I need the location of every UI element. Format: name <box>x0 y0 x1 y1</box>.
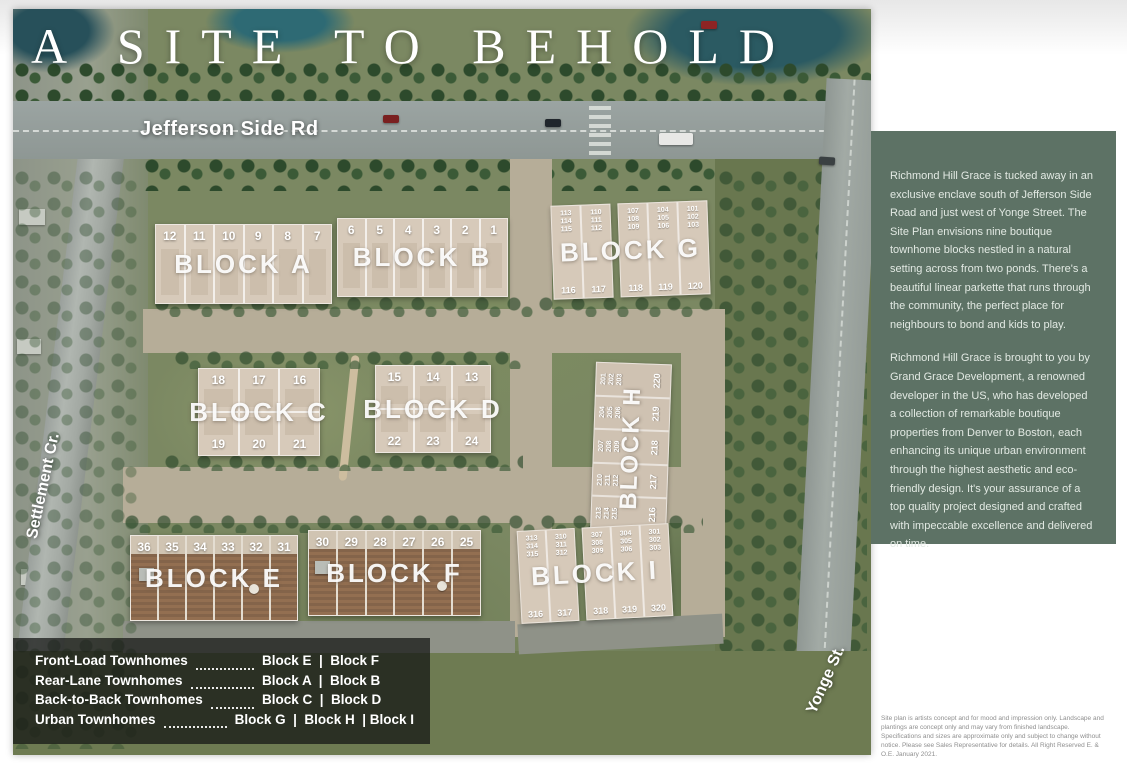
unit-cell: 301 302 303320 <box>641 524 673 616</box>
crosswalk <box>589 105 611 155</box>
block-h: 201 202 203220 204 205 206219 207 208 20… <box>590 362 672 535</box>
block-e-units: 36 35 34 33 32 31 <box>131 536 297 620</box>
unit-number: 36 <box>131 540 157 554</box>
unit-cell: 31 <box>271 536 297 620</box>
unit-number: 317 <box>551 607 579 618</box>
legend-type: Rear-Lane Townhomes <box>35 673 183 688</box>
unit-number: 116 <box>554 285 583 296</box>
unit-numbers: 310 311 312 <box>547 533 575 558</box>
legend-row: Rear-Lane Townhomes Block A | Block B <box>35 673 414 693</box>
unit-cell: 310 311 312317 <box>547 529 579 621</box>
unit-numbers: 101 102 103 <box>679 205 708 230</box>
deck <box>271 554 297 620</box>
unit-cell: 110 111 112117 <box>582 205 613 298</box>
block-i-east-building: 307 308 309318 304 305 306319 301 302 30… <box>582 523 673 620</box>
unit-cell: 113 114 115116 <box>551 206 584 299</box>
unit-cell: 17 <box>240 369 281 411</box>
legend-row: Front-Load Townhomes Block E | Block F <box>35 653 414 673</box>
unit-number: 118 <box>622 282 650 293</box>
unit-cell: 15 <box>376 366 415 408</box>
panel-paragraph-2: Richmond Hill Grace is brought to you by… <box>890 349 1094 554</box>
unit-number: 219 <box>650 407 661 422</box>
block-d-row-top: 15 14 13 <box>376 366 490 410</box>
unit-cell: 21 <box>280 413 319 455</box>
road-lane-line <box>13 130 845 132</box>
unit-number: 3 <box>424 223 451 237</box>
block-i: 313 314 315316 310 311 312317 307 308 30… <box>517 523 674 624</box>
unit-number: 218 <box>649 440 660 455</box>
deck <box>367 549 394 615</box>
block-h-label: BLOCK H <box>615 386 647 510</box>
disclaimer-text: Site plan is artists concept and for moo… <box>881 714 1109 759</box>
unit-number: 17 <box>240 373 279 387</box>
block-d-row-bottom: 22 23 24 <box>376 410 490 452</box>
block-b: 6 5 4 3 2 1 BLOCK B <box>337 218 508 297</box>
unit-cell: 9 <box>245 225 275 303</box>
unit-number: 24 <box>453 434 490 448</box>
block-g: 113 114 115116 110 111 112117 107 108 10… <box>550 200 710 299</box>
unit-cell: 11 <box>186 225 216 303</box>
deck <box>395 549 422 615</box>
dot-leader <box>164 726 227 728</box>
unit-cell: 104 105 106119 <box>649 202 682 295</box>
unit-cell: 313 314 315316 <box>518 530 552 622</box>
unit-number: 23 <box>415 434 452 448</box>
unit-cell: 20 <box>240 413 281 455</box>
unit-cell: 22 <box>376 410 415 452</box>
unit-cell: 3 <box>424 219 453 296</box>
block-e: 36 35 34 33 32 31 BLOCK E <box>130 535 298 621</box>
block-b-units: 6 5 4 3 2 1 <box>338 219 507 296</box>
unit-number: 14 <box>415 370 452 384</box>
shed <box>315 561 330 574</box>
unit-cell: 12 <box>156 225 186 303</box>
unit-cell: 26 <box>424 531 453 615</box>
legend-type: Urban Townhomes <box>35 712 156 727</box>
tree-row <box>143 157 723 191</box>
unit-cell: 32 <box>243 536 271 620</box>
unit-number: 117 <box>584 284 613 295</box>
unit-cell: 4 <box>395 219 424 296</box>
unit-cell: 25 <box>453 531 480 615</box>
unit-numbers: 307 308 309 <box>583 531 611 556</box>
legend-row: Back-to-Back Townhomes Block C | Block D <box>35 692 414 712</box>
unit-number: 319 <box>616 604 643 615</box>
block-g-east-building: 107 108 109118 104 105 106119 101 102 10… <box>618 200 711 297</box>
unit-number: 11 <box>186 229 214 243</box>
brochure-page: A SITE TO BEHOLD Jefferson Side Rd Settl… <box>0 0 1127 763</box>
unit-cell: 6 <box>338 219 367 296</box>
car <box>819 156 836 165</box>
unit-number: 34 <box>187 540 213 554</box>
unit-number: 12 <box>156 229 184 243</box>
dot-leader <box>196 668 254 670</box>
unit-number: 316 <box>522 608 550 619</box>
unit-number: 2 <box>452 223 479 237</box>
block-d: 15 14 13 22 23 24 BLOCK D <box>375 365 491 453</box>
car <box>545 119 561 127</box>
block-i-units: 313 314 315316 310 311 312317 307 308 30… <box>517 523 674 624</box>
deck <box>338 549 365 615</box>
unit-number: 16 <box>280 373 319 387</box>
unit-number: 15 <box>376 370 413 384</box>
legend-type: Front-Load Townhomes <box>35 653 188 668</box>
block-c-row-bottom: 19 20 21 <box>199 413 319 455</box>
unit-cell: 18 <box>199 369 240 411</box>
unit-cell: 24 <box>453 410 490 452</box>
unit-number: 119 <box>651 281 679 292</box>
unit-number: 7 <box>304 229 332 243</box>
unit-number: 217 <box>648 474 659 489</box>
unit-number: 33 <box>215 540 241 554</box>
unit-number: 8 <box>274 229 302 243</box>
unit-number: 5 <box>367 223 394 237</box>
block-i-west-building: 313 314 315316 310 311 312317 <box>517 528 580 624</box>
legend-row: Urban Townhomes Block G | Block H | Bloc… <box>35 712 414 732</box>
dot-leader <box>211 707 254 709</box>
unit-numbers: 313 314 315 <box>518 535 546 560</box>
unit-number: 32 <box>243 540 269 554</box>
unit-cell: 27 <box>395 531 424 615</box>
unit-cell: 10 <box>215 225 245 303</box>
unit-number: 318 <box>587 605 614 616</box>
legend: Front-Load Townhomes Block E | Block F R… <box>13 638 430 744</box>
unit-number: 30 <box>309 535 336 549</box>
legend-blocks: Block A | Block B <box>262 673 414 688</box>
description-panel: Richmond Hill Grace is tucked away in an… <box>870 131 1116 544</box>
block-c-units: 18 17 16 19 20 21 <box>199 369 319 455</box>
unit-cell: 14 <box>415 366 454 408</box>
unit-numbers: 304 305 306 <box>612 530 640 555</box>
unit-cell: 13 <box>453 366 490 408</box>
unit-number: 13 <box>453 370 490 384</box>
unit-cell: 23 <box>415 410 454 452</box>
block-c-row-top: 18 17 16 <box>199 369 319 413</box>
deck <box>187 554 213 620</box>
unit-number: 6 <box>338 223 365 237</box>
unit-number: 35 <box>159 540 185 554</box>
unit-cell: 2 <box>452 219 481 296</box>
unit-number: 10 <box>215 229 243 243</box>
unit-number: 21 <box>280 437 319 451</box>
unit-cell: 304 305 306319 <box>612 526 646 618</box>
deck <box>131 554 157 620</box>
unit-number: 31 <box>271 540 297 554</box>
page-title: A SITE TO BEHOLD <box>31 17 795 75</box>
unit-cell: 1 <box>481 219 508 296</box>
dot-leader <box>191 687 254 689</box>
unit-numbers: 301 302 303 <box>641 528 669 553</box>
unit-number: 18 <box>199 373 238 387</box>
unit-number: 25 <box>453 535 480 549</box>
unit-cell: 33 <box>215 536 243 620</box>
unit-number: 320 <box>645 602 672 613</box>
deck <box>453 549 480 615</box>
car <box>383 115 399 123</box>
jefferson-side-road <box>13 101 845 159</box>
unit-numbers: 104 105 106 <box>649 206 678 231</box>
unit-numbers: 113 114 115 <box>552 210 581 235</box>
unit-number: 9 <box>245 229 273 243</box>
unit-number: 26 <box>424 535 451 549</box>
block-g-west-building: 113 114 115116 110 111 112117 <box>550 204 614 300</box>
unit-cell: 35 <box>159 536 187 620</box>
unit-cell: 107 108 109118 <box>619 203 652 296</box>
block-f-units: 30 29 28 27 26 25 <box>309 531 480 615</box>
deck <box>309 549 336 615</box>
block-a-units: 12 11 10 9 8 7 <box>156 225 331 303</box>
patio-table <box>437 581 447 591</box>
unit-number: 22 <box>376 434 413 448</box>
unit-number: 220 <box>652 373 663 388</box>
unit-cell: 28 <box>367 531 396 615</box>
block-a: 12 11 10 9 8 7 BLOCK A <box>155 224 332 304</box>
block-f: 30 29 28 27 26 25 BLOCK F <box>308 530 481 616</box>
unit-cell: 34 <box>187 536 215 620</box>
panel-paragraph-1: Richmond Hill Grace is tucked away in an… <box>890 167 1094 334</box>
legend-blocks: Block E | Block F <box>262 653 414 668</box>
unit-number: 20 <box>240 437 279 451</box>
street-label-jefferson: Jefferson Side Rd <box>140 118 319 141</box>
unit-cell: 307 308 309318 <box>583 527 617 619</box>
block-c: 18 17 16 19 20 21 BLOCK C <box>198 368 320 456</box>
unit-number: 29 <box>338 535 365 549</box>
shed <box>139 568 154 581</box>
legend-blocks: Block G | Block H | Block I <box>235 712 414 727</box>
block-d-units: 15 14 13 22 23 24 <box>376 366 490 452</box>
unit-number: 27 <box>395 535 422 549</box>
legend-type: Back-to-Back Townhomes <box>35 692 203 707</box>
deck <box>159 554 185 620</box>
legend-blocks: Block C | Block D <box>262 692 414 707</box>
unit-cell: 5 <box>367 219 396 296</box>
unit-cell: 29 <box>338 531 367 615</box>
unit-cell: 19 <box>199 413 240 455</box>
unit-number: 1 <box>481 223 508 237</box>
unit-cell: 8 <box>274 225 304 303</box>
unit-number: 4 <box>395 223 422 237</box>
unit-cell: 7 <box>304 225 332 303</box>
unit-number: 28 <box>367 535 394 549</box>
unit-number: 19 <box>199 437 238 451</box>
unit-number: 216 <box>647 507 658 522</box>
deck <box>215 554 241 620</box>
patio-table <box>249 584 259 594</box>
unit-cell: 16 <box>280 369 319 411</box>
unit-number: 120 <box>681 280 709 291</box>
block-g-units: 113 114 115116 110 111 112117 107 108 10… <box>550 200 710 299</box>
site-plan-map: A SITE TO BEHOLD Jefferson Side Rd Settl… <box>13 9 871 755</box>
unit-numbers: 110 111 112 <box>582 209 611 234</box>
unit-cell: 101 102 103120 <box>678 201 709 294</box>
unit-numbers: 107 108 109 <box>619 207 648 232</box>
truck <box>659 133 693 145</box>
